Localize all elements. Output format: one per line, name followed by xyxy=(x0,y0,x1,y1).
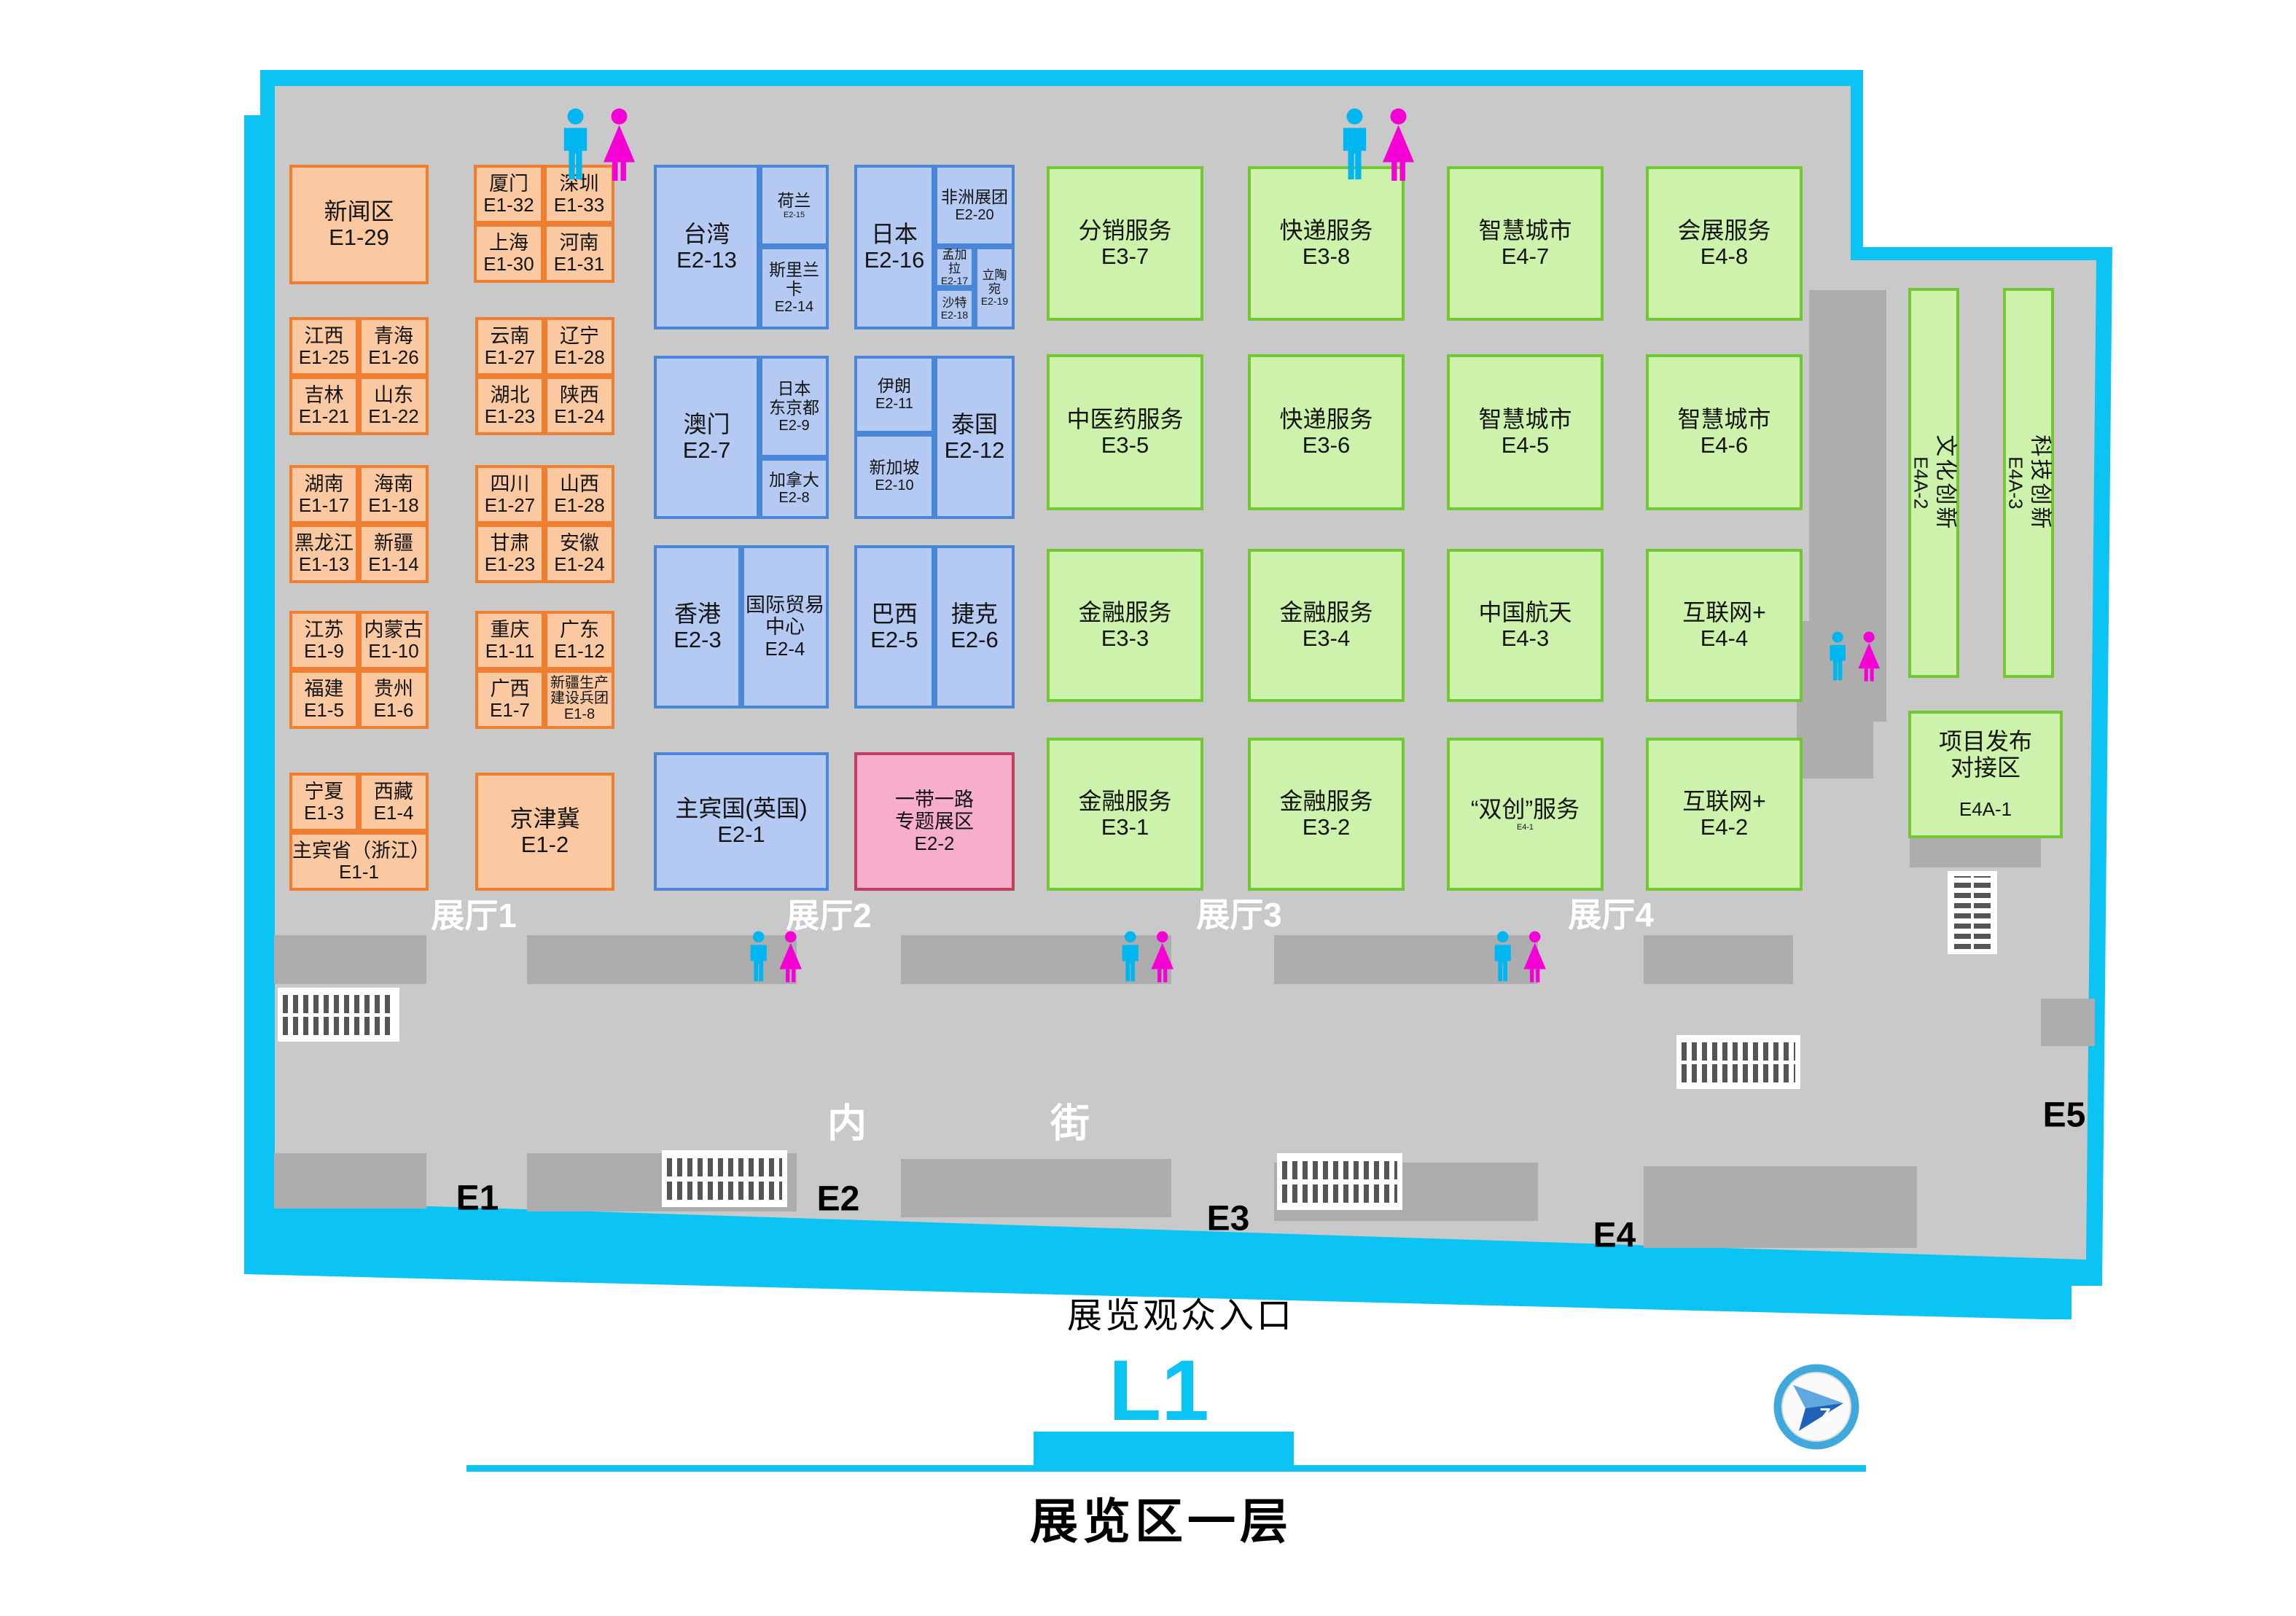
booth-code: E1-28 xyxy=(554,347,604,368)
entrance-label: 展览观众入口 xyxy=(1067,1287,1295,1338)
booth-E2-8: 加拿大E2-8 xyxy=(760,458,829,519)
booth-E1-7: 广西E1-7 xyxy=(475,670,544,729)
booth-name: 泰国 xyxy=(951,412,998,438)
booth-code: E2-7 xyxy=(683,438,730,464)
booth-code: E2-9 xyxy=(778,418,809,434)
booth-name: 辽宁 xyxy=(560,325,599,347)
booth-code: E2-3 xyxy=(673,628,721,653)
booth-code: E1-21 xyxy=(299,406,349,427)
booth-code: E1-32 xyxy=(483,195,534,216)
booth-code: E3-2 xyxy=(1303,815,1350,840)
male-restroom-icon xyxy=(1824,631,1851,682)
booth-E1-1: 主宾省（浙江）E1-1 xyxy=(289,832,429,891)
booth-name: 项目发布 对接区 xyxy=(1939,729,2032,781)
booth-code: E1-8 xyxy=(564,706,595,722)
wall-block xyxy=(1910,837,2041,867)
booth-code: E3-5 xyxy=(1101,433,1149,458)
booth-code: E4-5 xyxy=(1502,433,1549,458)
booth-name: 上海 xyxy=(489,232,528,254)
booth-E2-5: 巴西E2-5 xyxy=(854,545,934,709)
booth-name: 甘肃 xyxy=(491,532,530,554)
booth-code: E3-8 xyxy=(1303,244,1350,270)
male-restroom-icon xyxy=(745,931,772,983)
booth-name: 分销服务 xyxy=(1078,218,1171,244)
hall-label-4: 展厅4 xyxy=(1568,889,1654,937)
booth-code: E1-17 xyxy=(299,495,349,516)
booth-name: 黑龙江 xyxy=(294,532,354,554)
booth-name: 山西 xyxy=(560,473,599,495)
booth-name: 青海 xyxy=(374,325,413,347)
booth-name: 金融服务 xyxy=(1078,789,1171,815)
booth-name: 加拿大 xyxy=(769,471,819,490)
stairs-icon xyxy=(1948,871,1997,954)
page-title: 展览区一层 xyxy=(1030,1483,1292,1553)
booth-name: 快递服务 xyxy=(1279,218,1372,244)
zone-label-E4: E4 xyxy=(1593,1216,1636,1256)
booth-code: E1-24 xyxy=(554,406,604,427)
booth-E1-17: 湖南E1-17 xyxy=(289,465,359,524)
zone-label-E1: E1 xyxy=(456,1179,499,1219)
stairs-treads xyxy=(283,1017,394,1035)
booth-code: E2-6 xyxy=(950,628,998,653)
stairs-treads xyxy=(283,995,394,1013)
zone-label-E3: E3 xyxy=(1207,1199,1250,1239)
booth-name: 贵州 xyxy=(374,678,413,700)
booth-name: 重庆 xyxy=(491,619,530,641)
booth-code: E3-6 xyxy=(1303,433,1350,458)
booth-name: 江西 xyxy=(305,325,344,347)
booth-name: 厦门 xyxy=(489,173,528,195)
restroom-icons xyxy=(745,931,805,983)
hall-label-1: 展厅1 xyxy=(431,889,517,937)
booth-E3-6: 快递服务E3-6 xyxy=(1248,354,1405,510)
booth-E1-2: 京津冀E1-2 xyxy=(475,773,614,891)
booth-code: E2-4 xyxy=(765,639,805,660)
booth-code: E1-13 xyxy=(299,554,349,575)
booth-code: E4A-1 xyxy=(1959,799,2012,820)
booth-code: E1-29 xyxy=(329,225,389,251)
booth-code: E4A-2 xyxy=(1910,456,1932,509)
booth-E1-21: 吉林E1-21 xyxy=(289,376,359,435)
booth-E4-3: 中国航天E4-3 xyxy=(1447,549,1604,702)
stairs-treads xyxy=(1954,876,1971,949)
zone-label-E5: E5 xyxy=(2043,1096,2086,1136)
floor-underline-line xyxy=(466,1465,1866,1472)
booth-code: E4-3 xyxy=(1502,626,1549,652)
booth-E1-28: 山西E1-28 xyxy=(544,465,614,524)
stairs-icon xyxy=(1277,1153,1402,1210)
booth-name: 科技创新 xyxy=(2028,434,2053,531)
booth-name: 国际贸易 中心 xyxy=(746,594,824,638)
booth-name: 互联网+ xyxy=(1682,600,1766,626)
booth-E2-6: 捷克E2-6 xyxy=(934,545,1015,709)
booth-E2-17: 孟加拉E2-17 xyxy=(934,246,975,288)
male-restroom-icon xyxy=(1335,108,1374,182)
booth-E4A-3: 科技创新E4A-3 xyxy=(2003,288,2054,678)
stairs-treads xyxy=(667,1158,782,1176)
street-label-jie: 街 xyxy=(1050,1091,1090,1149)
compass-icon: Z xyxy=(1773,1363,1860,1451)
booth-E1-5: 福建E1-5 xyxy=(289,670,359,729)
wall-block xyxy=(1644,935,1793,984)
booth-name: 宁夏 xyxy=(305,781,344,803)
booth-code: E1-22 xyxy=(368,406,418,427)
booth-code: E1-23 xyxy=(485,406,535,427)
booth-E2-14: 斯里兰卡E2-14 xyxy=(760,246,829,329)
female-restroom-icon xyxy=(1149,931,1176,983)
booth-E4-2: 互联网+E4-2 xyxy=(1646,738,1803,891)
booth-E4-5: 智慧城市E4-5 xyxy=(1447,354,1604,510)
booth-E4A-2: 文化创新E4A-2 xyxy=(1908,288,1959,678)
booth-E1-4: 西藏E1-4 xyxy=(359,773,429,832)
booth-name: 京津冀 xyxy=(509,806,579,832)
booth-E3-7: 分销服务E3-7 xyxy=(1047,166,1203,321)
booth-E1-14: 新疆E1-14 xyxy=(359,524,429,583)
booth-E1-30: 上海E1-30 xyxy=(474,224,544,283)
booth-name: 新加坡 xyxy=(870,458,920,477)
booth-code: E2-18 xyxy=(941,310,968,321)
booth-E3-4: 金融服务E3-4 xyxy=(1248,549,1405,702)
booth-name: 香港 xyxy=(674,601,721,628)
zone-label-E2: E2 xyxy=(817,1179,860,1219)
stairs-treads xyxy=(1682,1064,1795,1082)
booth-code: E1-24 xyxy=(554,554,604,575)
booth-E2-10: 新加坡E2-10 xyxy=(854,434,934,519)
wall-block xyxy=(2041,999,2095,1046)
booth-code: E1-26 xyxy=(368,347,418,368)
booth-code: E4-2 xyxy=(1700,815,1748,840)
booth-code: E2-5 xyxy=(870,628,918,653)
booth-name: 广东 xyxy=(560,619,599,641)
booth-code: E1-23 xyxy=(485,554,535,575)
male-restroom-icon xyxy=(1489,931,1516,983)
booth-code: E2-13 xyxy=(676,248,737,273)
booth-E1-10: 内蒙古E1-10 xyxy=(359,611,429,670)
booth-name: 台湾 xyxy=(683,222,730,248)
booth-E1-18: 海南E1-18 xyxy=(359,465,429,524)
booth-name: 智慧城市 xyxy=(1478,218,1571,244)
booth-E4-4: 互联网+E4-4 xyxy=(1646,549,1803,702)
booth-name: 巴西 xyxy=(871,601,918,628)
booth-name: 伊朗 xyxy=(878,377,911,396)
booth-code: E2-17 xyxy=(941,276,968,287)
booth-E1-24: 安徽E1-24 xyxy=(544,524,614,583)
wall-block xyxy=(274,1153,426,1209)
wall-block xyxy=(901,1159,1171,1217)
booth-code: E2-16 xyxy=(864,248,925,273)
booth-name: 云南 xyxy=(491,325,530,347)
female-restroom-icon xyxy=(777,931,804,983)
booth-name: 会展服务 xyxy=(1677,218,1770,244)
booth-E1-6: 贵州E1-6 xyxy=(359,670,429,729)
booth-name: 中国航天 xyxy=(1478,600,1571,626)
male-restroom-icon xyxy=(1117,931,1144,983)
booth-name: 金融服务 xyxy=(1279,789,1372,815)
stairs-icon xyxy=(1676,1035,1800,1089)
booth-E3-1: 金融服务E3-1 xyxy=(1047,738,1203,891)
hall-label-2: 展厅2 xyxy=(786,889,872,937)
booth-name: 斯里兰卡 xyxy=(762,261,826,299)
booth-code: E4-4 xyxy=(1700,626,1748,652)
booth-name: 内蒙古 xyxy=(364,619,423,641)
stairs-treads xyxy=(1282,1184,1397,1203)
stairs-treads xyxy=(667,1182,782,1200)
booth-code: E4-8 xyxy=(1700,244,1748,270)
booth-code: E1-1 xyxy=(339,862,379,883)
booth-name: 吉林 xyxy=(305,384,344,406)
booth-code: E3-1 xyxy=(1101,815,1149,840)
booth-code: E2-8 xyxy=(778,490,809,506)
booth-code: E1-28 xyxy=(554,495,604,516)
female-restroom-icon xyxy=(1521,931,1548,983)
booth-E2-12: 泰国E2-12 xyxy=(934,356,1015,519)
booth-E2-1: 主宾国(英国)E2-1 xyxy=(654,752,829,891)
booth-E2-18: 沙特E2-18 xyxy=(934,288,975,329)
booth-code: E3-3 xyxy=(1101,626,1149,652)
booth-name: 新疆生产 建设兵团 xyxy=(550,676,609,706)
male-restroom-icon xyxy=(556,108,595,182)
booth-name: 立陶宛 xyxy=(977,268,1012,296)
booth-E2-19: 立陶宛E2-19 xyxy=(975,246,1015,329)
booth-code: E4-7 xyxy=(1502,244,1549,270)
booth-E3-2: 金融服务E3-2 xyxy=(1248,738,1405,891)
booth-code: E1-6 xyxy=(374,700,414,721)
female-restroom-icon xyxy=(1856,631,1882,682)
stairs-treads xyxy=(1282,1161,1397,1179)
booth-code: E4-1 xyxy=(1517,823,1534,832)
booth-name: 孟加拉 xyxy=(937,248,972,276)
booth-E1-23: 湖北E1-23 xyxy=(475,376,544,435)
booth-code: E1-18 xyxy=(368,495,418,516)
hall-label-3: 展厅3 xyxy=(1196,889,1282,937)
booth-name: 中医药服务 xyxy=(1066,407,1183,433)
booth-name: 荷兰 xyxy=(778,192,811,211)
booth-name: 广西 xyxy=(491,678,530,700)
booth-code: E1-27 xyxy=(485,495,535,516)
booth-code: E2-1 xyxy=(717,822,765,848)
booth-E2-15: 荷兰E2-15 xyxy=(760,165,829,246)
svg-text:Z: Z xyxy=(1819,1404,1831,1426)
booth-name: 一带一路 专题展区 xyxy=(895,789,974,832)
booth-code: E1-3 xyxy=(304,803,344,824)
booth-code: E2-10 xyxy=(875,477,913,493)
booth-E2-16: 日本E2-16 xyxy=(854,165,934,329)
booth-code: E1-12 xyxy=(554,641,604,662)
booth-E1-27: 四川E1-27 xyxy=(475,465,544,524)
booth-E4A-1: 项目发布 对接区E4A-1 xyxy=(1908,711,2063,838)
booth-E2-20: 非洲展团E2-20 xyxy=(934,165,1015,246)
booth-name: 新疆 xyxy=(374,532,413,554)
booth-name: 主宾省（浙江） xyxy=(292,840,426,862)
booth-code: E2-12 xyxy=(945,438,1005,464)
booth-E3-8: 快递服务E3-8 xyxy=(1248,166,1405,321)
booth-E1-25: 江西E1-25 xyxy=(289,317,359,376)
booth-name: 互联网+ xyxy=(1682,789,1766,815)
booth-name: 湖南 xyxy=(305,473,344,495)
booth-name: 山东 xyxy=(374,384,413,406)
floor-plan-canvas: 新闻区E1-29厦门E1-32深圳E1-33上海E1-30河南E1-31江西E1… xyxy=(0,0,2296,1616)
booth-E1-8: 新疆生产 建设兵团E1-8 xyxy=(544,670,614,729)
booth-name: 江苏 xyxy=(305,619,344,641)
booth-name: 新闻区 xyxy=(324,199,394,225)
booth-E4-7: 智慧城市E4-7 xyxy=(1447,166,1604,321)
booth-E4-1: “双创”服务E4-1 xyxy=(1447,738,1604,891)
female-restroom-icon xyxy=(1379,108,1418,182)
booth-name: 文化创新 xyxy=(1933,434,1958,531)
booth-name: 智慧城市 xyxy=(1677,407,1770,433)
booth-E2-2: 一带一路 专题展区E2-2 xyxy=(854,752,1015,891)
booth-code: E1-7 xyxy=(490,700,530,721)
booth-E4-6: 智慧城市E4-6 xyxy=(1646,354,1803,510)
restroom-icons xyxy=(1824,631,1883,682)
booth-name: 捷克 xyxy=(951,601,998,628)
booth-E1-29: 新闻区E1-29 xyxy=(289,165,429,284)
booth-code: E2-20 xyxy=(955,207,993,223)
booth-code: E2-11 xyxy=(875,396,913,412)
floor-underline-block xyxy=(1034,1432,1294,1468)
restroom-icons xyxy=(1335,108,1418,182)
booth-code: E2-14 xyxy=(775,299,813,315)
booth-code: E4A-3 xyxy=(2005,456,2026,509)
booth-E1-13: 黑龙江E1-13 xyxy=(289,524,359,583)
booth-code: E1-14 xyxy=(368,554,418,575)
restroom-icons xyxy=(1117,931,1176,983)
booth-code: E2-19 xyxy=(981,296,1008,308)
booth-code: E2-15 xyxy=(784,211,805,219)
female-restroom-icon xyxy=(600,108,639,182)
booth-name: 主宾国(英国) xyxy=(675,796,807,822)
booth-name: 澳门 xyxy=(683,412,730,438)
booth-code: E3-4 xyxy=(1303,626,1350,652)
restroom-icons xyxy=(556,108,639,182)
booth-code: E1-10 xyxy=(368,641,418,662)
booth-E1-22: 山东E1-22 xyxy=(359,376,429,435)
booth-E2-4: 国际贸易 中心E2-4 xyxy=(741,545,829,709)
stairs-icon xyxy=(278,988,399,1042)
booth-code: E2-2 xyxy=(915,833,955,854)
wall-block xyxy=(1644,1166,1917,1248)
booth-E1-11: 重庆E1-11 xyxy=(475,611,544,670)
booth-name: 安徽 xyxy=(560,532,599,554)
booth-name: 西藏 xyxy=(374,781,413,803)
stairs-treads xyxy=(1682,1042,1795,1061)
booth-code: E1-33 xyxy=(554,195,604,216)
booth-code: E1-4 xyxy=(374,803,414,824)
booth-E1-12: 广东E1-12 xyxy=(544,611,614,670)
booth-code: E1-30 xyxy=(483,254,534,275)
booth-E2-3: 香港E2-3 xyxy=(654,545,741,709)
booth-name: 陕西 xyxy=(560,384,599,406)
booth-E1-32: 厦门E1-32 xyxy=(474,165,544,224)
street-label-nei: 内 xyxy=(827,1091,867,1149)
booth-E1-24: 陕西E1-24 xyxy=(544,376,614,435)
booth-E3-3: 金融服务E3-3 xyxy=(1047,549,1203,702)
booth-name: 快递服务 xyxy=(1279,407,1372,433)
booth-code: E3-7 xyxy=(1101,244,1149,270)
booth-name: 日本 xyxy=(871,222,918,248)
booth-name: 非洲展团 xyxy=(941,188,1008,207)
booth-E2-9: 日本 东京都E2-9 xyxy=(760,356,829,458)
booth-code: E1-5 xyxy=(304,700,344,721)
booth-E2-7: 澳门E2-7 xyxy=(654,356,760,519)
booth-E4-8: 会展服务E4-8 xyxy=(1646,166,1803,321)
booth-E1-28: 辽宁E1-28 xyxy=(544,317,614,376)
booth-name: 四川 xyxy=(491,473,530,495)
booth-E3-5: 中医药服务E3-5 xyxy=(1047,354,1203,510)
booth-name: 湖北 xyxy=(491,384,530,406)
booth-code: E1-2 xyxy=(521,832,569,858)
booth-name: 金融服务 xyxy=(1078,600,1171,626)
booth-name: 福建 xyxy=(305,678,344,700)
booth-code: E1-9 xyxy=(304,641,344,662)
stairs-icon xyxy=(662,1150,787,1207)
booth-E1-31: 河南E1-31 xyxy=(544,224,614,283)
stairs-treads xyxy=(1974,876,1991,949)
booth-E1-9: 江苏E1-9 xyxy=(289,611,359,670)
restroom-icons xyxy=(1489,931,1549,983)
booth-E2-13: 台湾E2-13 xyxy=(654,165,760,329)
booth-code: E1-25 xyxy=(299,347,349,368)
booth-code: E1-11 xyxy=(485,641,534,662)
booth-name: 金融服务 xyxy=(1279,600,1372,626)
booth-name: 河南 xyxy=(560,232,599,254)
booth-E2-11: 伊朗E2-11 xyxy=(854,356,934,434)
booth-code: E4-6 xyxy=(1700,433,1748,458)
booth-name: 智慧城市 xyxy=(1478,407,1571,433)
booth-name: “双创”服务 xyxy=(1471,797,1580,823)
booth-code: E1-27 xyxy=(485,347,535,368)
booth-E1-27: 云南E1-27 xyxy=(475,317,544,376)
booth-E1-3: 宁夏E1-3 xyxy=(289,773,359,832)
booth-E1-26: 青海E1-26 xyxy=(359,317,429,376)
booth-code: E1-31 xyxy=(554,254,604,275)
booth-name: 海南 xyxy=(374,473,413,495)
wall-block xyxy=(274,935,426,984)
floor-code-label: L1 xyxy=(1109,1341,1209,1440)
booth-E1-23: 甘肃E1-23 xyxy=(475,524,544,583)
booth-name: 沙特 xyxy=(942,296,967,310)
booth-name: 日本 东京都 xyxy=(769,380,819,418)
